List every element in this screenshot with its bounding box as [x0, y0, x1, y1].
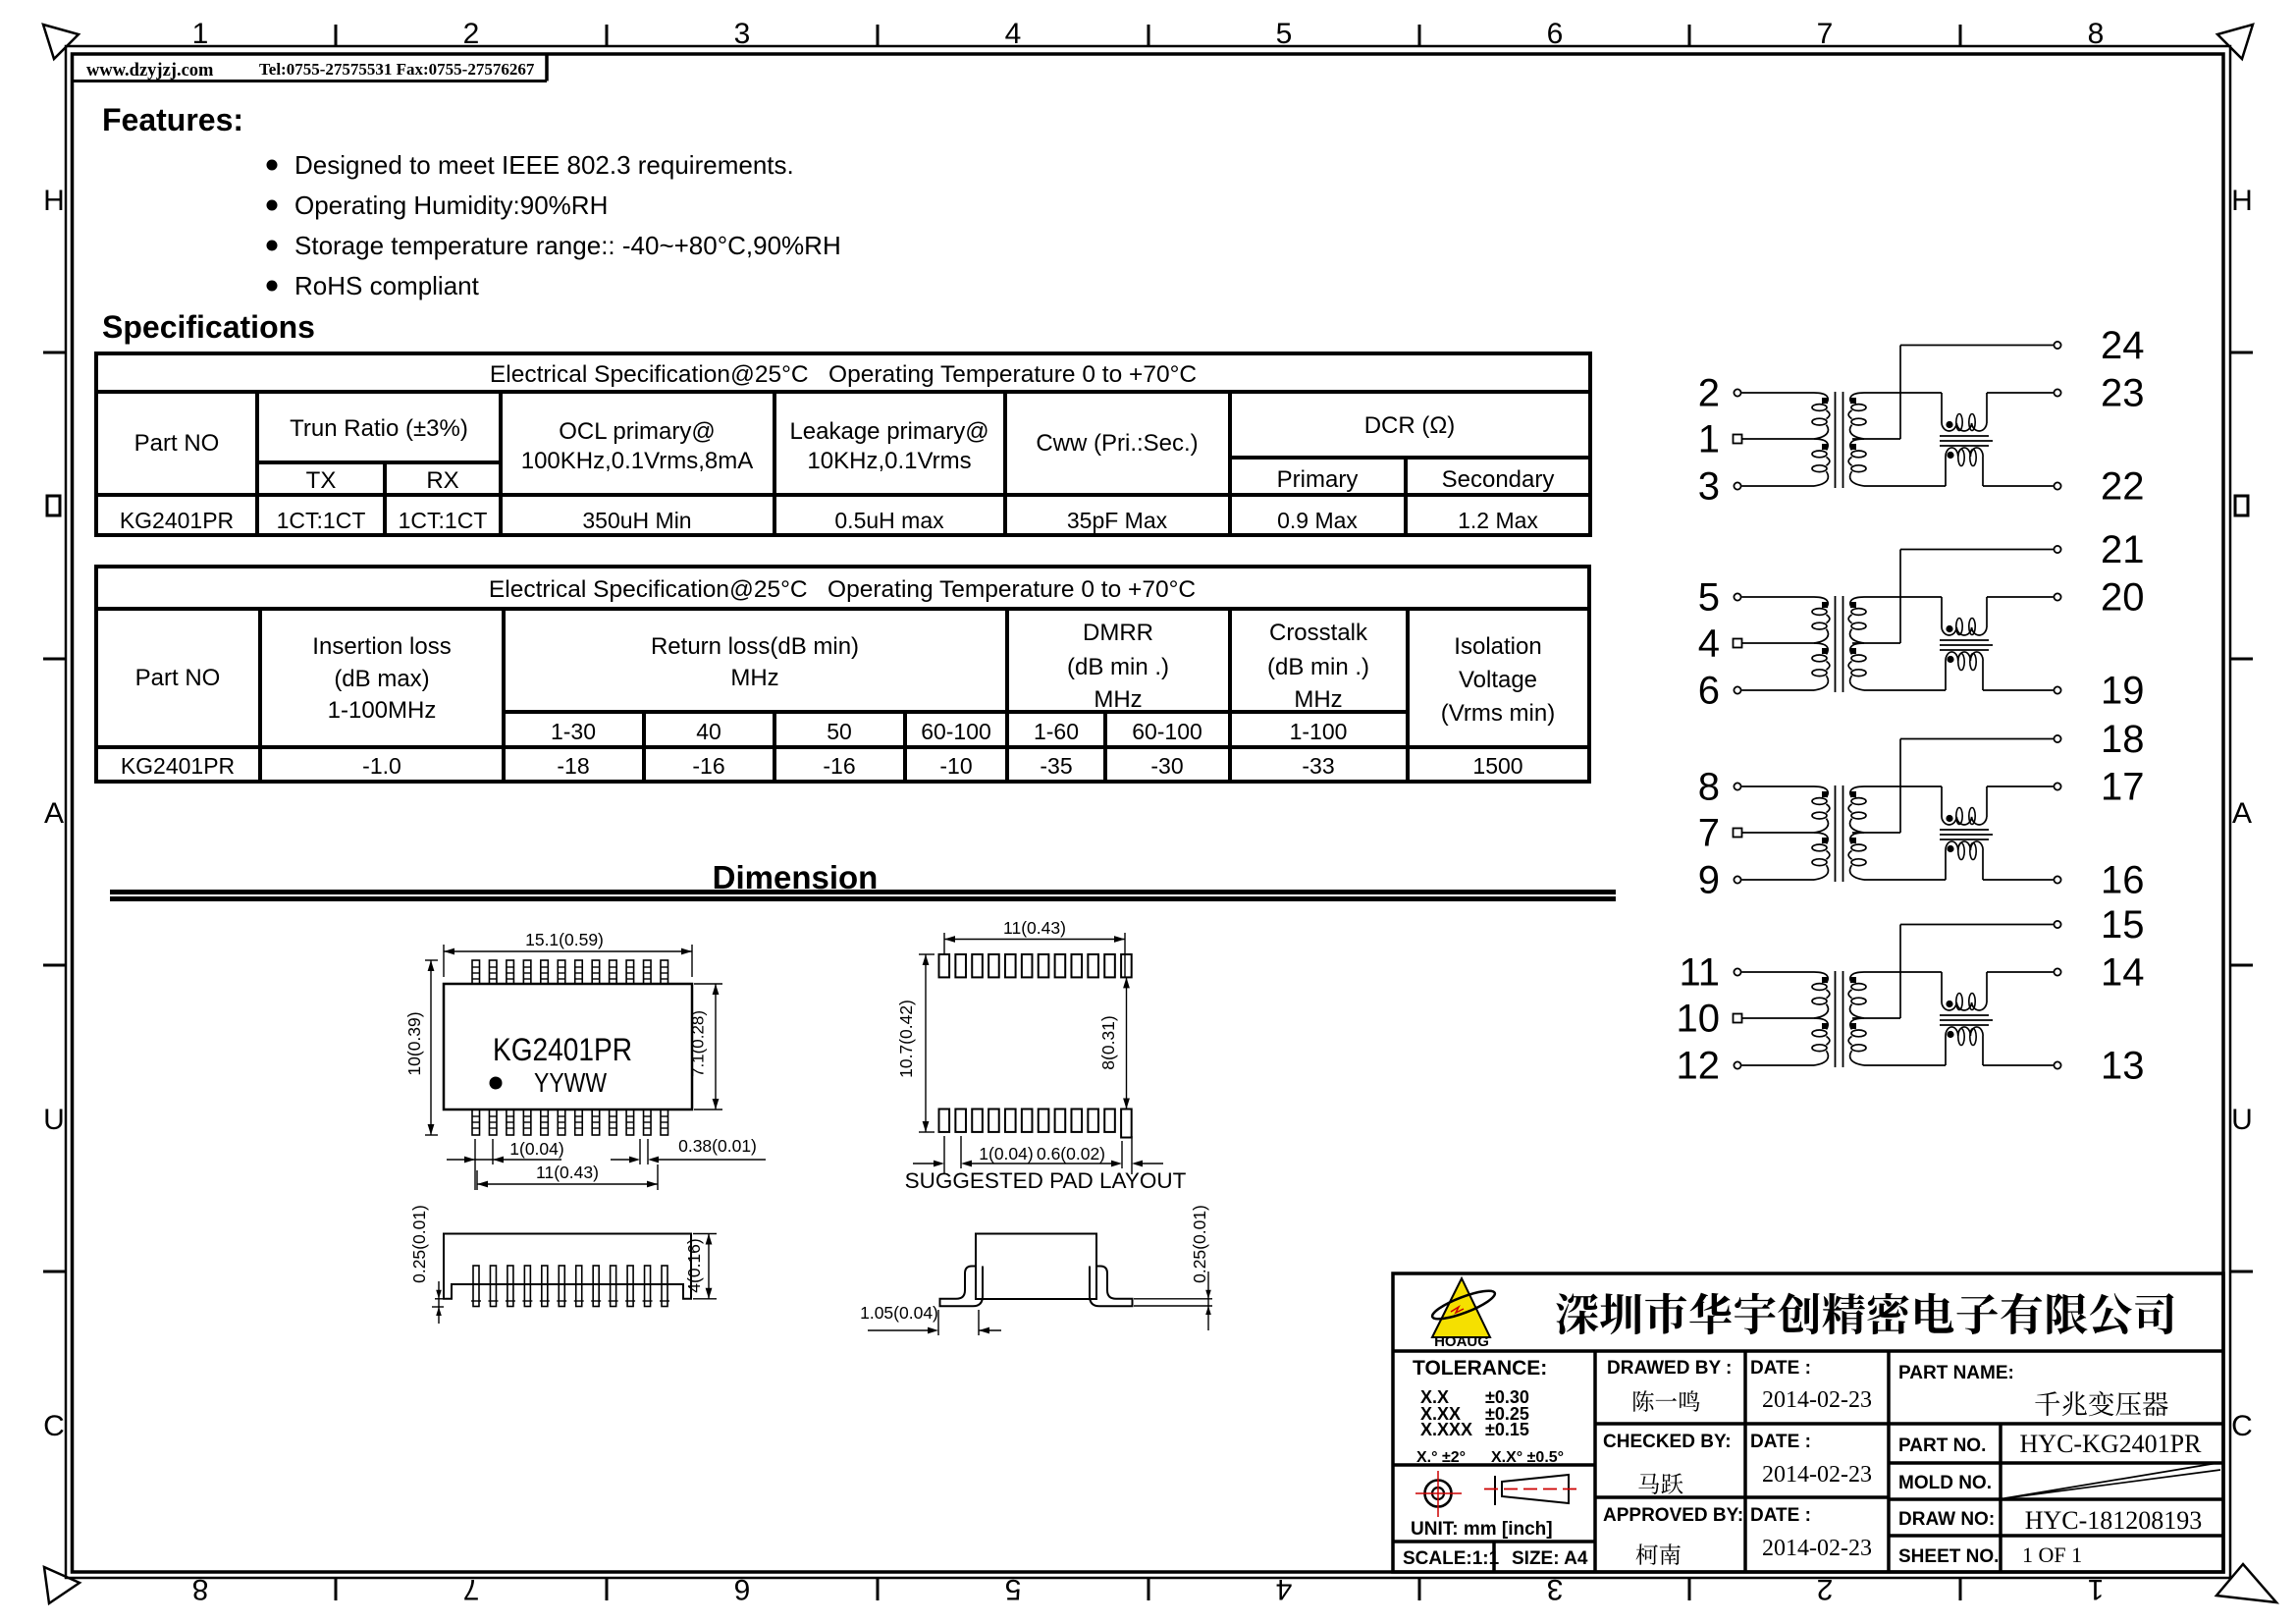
svg-text:KG2401PR: KG2401PR — [121, 753, 235, 779]
svg-text:(dB min .): (dB min .) — [1067, 654, 1169, 680]
svg-text:0.9 Max: 0.9 Max — [1277, 508, 1358, 533]
svg-text:20: 20 — [2101, 576, 2145, 620]
svg-text:H: H — [2231, 185, 2253, 217]
svg-text:24: 24 — [2101, 324, 2145, 367]
svg-text:8(0.31): 8(0.31) — [1098, 1015, 1118, 1069]
svg-text:2: 2 — [1817, 1573, 1834, 1605]
svg-text:DATE :: DATE : — [1750, 1505, 1811, 1526]
svg-text:C: C — [2231, 1410, 2253, 1442]
svg-text:Specifications: Specifications — [102, 309, 315, 345]
svg-text:1CT:1CT: 1CT:1CT — [399, 508, 488, 533]
svg-text:1(0.04): 1(0.04) — [509, 1139, 563, 1159]
svg-text:15: 15 — [2101, 903, 2145, 947]
svg-text:4: 4 — [1698, 623, 1720, 666]
svg-text:C: C — [43, 1410, 65, 1442]
svg-text:16: 16 — [2101, 859, 2145, 902]
svg-text:0.5uH max: 0.5uH max — [834, 508, 944, 533]
svg-text:DMRR: DMRR — [1083, 620, 1153, 646]
svg-text:8: 8 — [2088, 18, 2105, 50]
svg-text:2014-02-23: 2014-02-23 — [1762, 1462, 1872, 1488]
svg-text:350uH Min: 350uH Min — [582, 508, 691, 533]
svg-text:A: A — [44, 797, 64, 830]
svg-text:1-100MHz: 1-100MHz — [328, 697, 437, 724]
svg-text:18: 18 — [2101, 718, 2145, 761]
svg-text:Part NO: Part NO — [135, 665, 221, 691]
svg-text:Cww (Pri.:Sec.): Cww (Pri.:Sec.) — [1036, 430, 1198, 457]
svg-text:9: 9 — [1698, 859, 1720, 902]
svg-text:-33: -33 — [1302, 753, 1334, 779]
svg-text:-16: -16 — [823, 753, 855, 779]
svg-text:Return loss(dB min): Return loss(dB min) — [651, 633, 859, 660]
svg-text:1: 1 — [2088, 1573, 2105, 1605]
svg-text:-10: -10 — [939, 753, 972, 779]
svg-text:DATE :: DATE : — [1750, 1358, 1811, 1379]
svg-text:60-100: 60-100 — [921, 719, 991, 744]
svg-text:MHz: MHz — [730, 665, 778, 691]
svg-text:Designed to meet IEEE 802.3 re: Designed to meet IEEE 802.3 requirements… — [294, 150, 794, 180]
svg-text:HOAUG: HOAUG — [1434, 1333, 1489, 1350]
svg-text:A: A — [2232, 797, 2252, 830]
svg-text:1-60: 1-60 — [1034, 719, 1079, 744]
svg-text:14: 14 — [2101, 951, 2145, 995]
svg-text:10KHz,0.1Vrms: 10KHz,0.1Vrms — [807, 448, 971, 474]
svg-text:www.dzyjzj.com: www.dzyjzj.com — [86, 61, 214, 81]
svg-text:Part NO: Part NO — [134, 430, 220, 457]
svg-text:1: 1 — [192, 18, 209, 50]
svg-text:(dB min .): (dB min .) — [1267, 654, 1369, 680]
svg-text:2: 2 — [1698, 372, 1720, 415]
svg-text:23: 23 — [2101, 372, 2145, 415]
svg-text:0.38(0.01): 0.38(0.01) — [678, 1136, 757, 1156]
svg-text:±0.15: ±0.15 — [1485, 1420, 1529, 1439]
svg-text:X.X° ±0.5°: X.X° ±0.5° — [1491, 1449, 1564, 1466]
svg-text:SHEET NO.: SHEET NO. — [1898, 1546, 1999, 1567]
svg-text:MHz: MHz — [1294, 686, 1342, 713]
svg-text:5: 5 — [1276, 18, 1293, 50]
svg-text:Crosstalk: Crosstalk — [1269, 620, 1368, 646]
svg-text:5: 5 — [1005, 1573, 1022, 1605]
svg-text:TX: TX — [306, 467, 337, 494]
svg-text:1.05(0.04): 1.05(0.04) — [860, 1303, 938, 1323]
svg-text:SUGGESTED PAD LAYOUT: SUGGESTED PAD LAYOUT — [905, 1168, 1187, 1193]
svg-text:Isolation: Isolation — [1454, 633, 1541, 660]
svg-text:-18: -18 — [557, 753, 589, 779]
svg-text:1(0.04): 1(0.04) — [979, 1144, 1033, 1164]
svg-text:15.1(0.59): 15.1(0.59) — [525, 930, 604, 949]
svg-text:4: 4 — [1005, 18, 1022, 50]
svg-text:KG2401PR: KG2401PR — [120, 508, 234, 533]
svg-text:10: 10 — [1677, 998, 1721, 1041]
svg-text:(dB max): (dB max) — [334, 666, 429, 692]
svg-text:10(0.39): 10(0.39) — [404, 1011, 424, 1075]
svg-text:DCR (Ω): DCR (Ω) — [1364, 412, 1456, 439]
svg-text:Primary: Primary — [1277, 466, 1359, 493]
svg-text:35pF Max: 35pF Max — [1067, 508, 1168, 533]
svg-text:11(0.43): 11(0.43) — [536, 1163, 599, 1182]
svg-text:Electrical Specification@25°C: Electrical Specification@25°C Operating … — [489, 576, 1196, 603]
svg-text:MOLD NO.: MOLD NO. — [1898, 1473, 1992, 1493]
svg-text:U: U — [43, 1104, 65, 1136]
svg-text:Trun Ratio (±3%): Trun Ratio (±3%) — [290, 415, 468, 442]
svg-text:3: 3 — [734, 18, 751, 50]
svg-text:Leakage primary@: Leakage primary@ — [789, 418, 988, 445]
svg-text:MHz: MHz — [1094, 686, 1142, 713]
svg-text:-35: -35 — [1040, 753, 1072, 779]
svg-text:Secondary: Secondary — [1442, 466, 1555, 493]
svg-text:2014-02-23: 2014-02-23 — [1762, 1387, 1872, 1413]
svg-text:7: 7 — [1817, 18, 1834, 50]
svg-text:DATE :: DATE : — [1750, 1432, 1811, 1452]
svg-text:PART NAME:: PART NAME: — [1898, 1363, 2014, 1383]
svg-text:13: 13 — [2101, 1045, 2145, 1088]
svg-text:3: 3 — [1547, 1573, 1564, 1605]
svg-text:7.1(0.28): 7.1(0.28) — [689, 1010, 708, 1077]
svg-text:UNIT: mm [inch]: UNIT: mm [inch] — [1411, 1519, 1553, 1540]
svg-text:RX: RX — [426, 467, 458, 494]
svg-text:0.25(0.01): 0.25(0.01) — [409, 1205, 429, 1283]
svg-text:1 OF 1: 1 OF 1 — [2022, 1543, 2082, 1567]
svg-text:TOLERANCE:: TOLERANCE: — [1413, 1357, 1547, 1380]
svg-text:Storage temperature range:: -: Storage temperature range:: -40~+80°C,90… — [294, 231, 841, 260]
svg-text:5: 5 — [1698, 576, 1720, 620]
svg-text:-1.0: -1.0 — [362, 753, 401, 779]
svg-text:6: 6 — [1547, 18, 1564, 50]
svg-text:2014-02-23: 2014-02-23 — [1762, 1536, 1872, 1561]
svg-text:X.XXX: X.XXX — [1420, 1420, 1472, 1439]
svg-text:1-30: 1-30 — [551, 719, 596, 744]
svg-text:22: 22 — [2101, 465, 2145, 509]
svg-text:60-100: 60-100 — [1132, 719, 1202, 744]
svg-text:11(0.43): 11(0.43) — [1003, 918, 1066, 938]
svg-text:DRAW NO:: DRAW NO: — [1898, 1509, 1995, 1530]
svg-text:0.25(0.01): 0.25(0.01) — [1190, 1205, 1209, 1283]
svg-text:2: 2 — [463, 18, 480, 50]
svg-text:HYC-KG2401PR: HYC-KG2401PR — [2020, 1430, 2203, 1458]
svg-text:17: 17 — [2101, 766, 2145, 809]
svg-text:H: H — [43, 185, 65, 217]
svg-text:Features:: Features: — [102, 102, 243, 137]
svg-text:1: 1 — [1698, 418, 1720, 461]
svg-text:6: 6 — [1698, 670, 1720, 713]
svg-text:19: 19 — [2101, 670, 2145, 713]
svg-text:11: 11 — [1679, 951, 1720, 995]
svg-text:CHECKED BY:: CHECKED BY: — [1603, 1432, 1732, 1452]
svg-text:RoHS compliant: RoHS compliant — [294, 271, 480, 300]
svg-text:1CT:1CT: 1CT:1CT — [277, 508, 366, 533]
svg-text:Tel:0755-27575531 Fax:0755-27: Tel:0755-27575531 Fax:0755-27576267 — [259, 60, 535, 79]
svg-text:1-100: 1-100 — [1290, 719, 1348, 744]
svg-text:1.2 Max: 1.2 Max — [1458, 508, 1538, 533]
svg-text:HYC-181208193: HYC-181208193 — [2025, 1506, 2203, 1535]
svg-text:Voltage: Voltage — [1459, 667, 1537, 693]
svg-text:10.7(0.42): 10.7(0.42) — [896, 1000, 916, 1078]
svg-text:3: 3 — [1698, 465, 1720, 509]
svg-text:1500: 1500 — [1472, 753, 1522, 779]
svg-text:DRAWED BY :: DRAWED BY : — [1607, 1358, 1732, 1379]
svg-text:4: 4 — [1276, 1573, 1293, 1605]
svg-text:-30: -30 — [1150, 753, 1183, 779]
svg-text:100KHz,0.1Vrms,8mA: 100KHz,0.1Vrms,8mA — [521, 448, 754, 474]
svg-text:7: 7 — [1698, 812, 1720, 855]
svg-text:-16: -16 — [692, 753, 724, 779]
svg-text:Insertion loss: Insertion loss — [312, 633, 451, 660]
svg-text:YYWW: YYWW — [534, 1067, 607, 1098]
svg-text:X.° ±2°: X.° ±2° — [1416, 1449, 1466, 1466]
svg-text:APPROVED BY:: APPROVED BY: — [1603, 1505, 1743, 1526]
svg-text:SCALE:1:1: SCALE:1:1 — [1403, 1548, 1500, 1569]
svg-text:Operating Humidity:90%RH: Operating Humidity:90%RH — [294, 190, 608, 220]
svg-text:OCL primary@: OCL primary@ — [559, 418, 716, 445]
svg-text:8: 8 — [1698, 766, 1720, 809]
svg-text:6: 6 — [734, 1573, 751, 1605]
svg-text:40: 40 — [696, 719, 721, 744]
svg-text:4(0.16): 4(0.16) — [684, 1238, 704, 1292]
svg-text:50: 50 — [827, 719, 852, 744]
svg-text:PART NO.: PART NO. — [1898, 1435, 1986, 1456]
svg-text:SIZE: A4: SIZE: A4 — [1512, 1548, 1588, 1569]
svg-text:0.6(0.02): 0.6(0.02) — [1037, 1144, 1105, 1164]
svg-text:KG2401PR: KG2401PR — [493, 1032, 632, 1067]
svg-text:Electrical Specification@25°C: Electrical Specification@25°C Operating … — [490, 361, 1197, 388]
svg-text:21: 21 — [2101, 528, 2145, 571]
svg-text:8: 8 — [192, 1573, 209, 1605]
svg-text:7: 7 — [463, 1573, 480, 1605]
svg-text:12: 12 — [1677, 1045, 1721, 1088]
svg-text:(Vrms min): (Vrms min) — [1441, 700, 1555, 727]
svg-text:U: U — [2231, 1104, 2253, 1136]
